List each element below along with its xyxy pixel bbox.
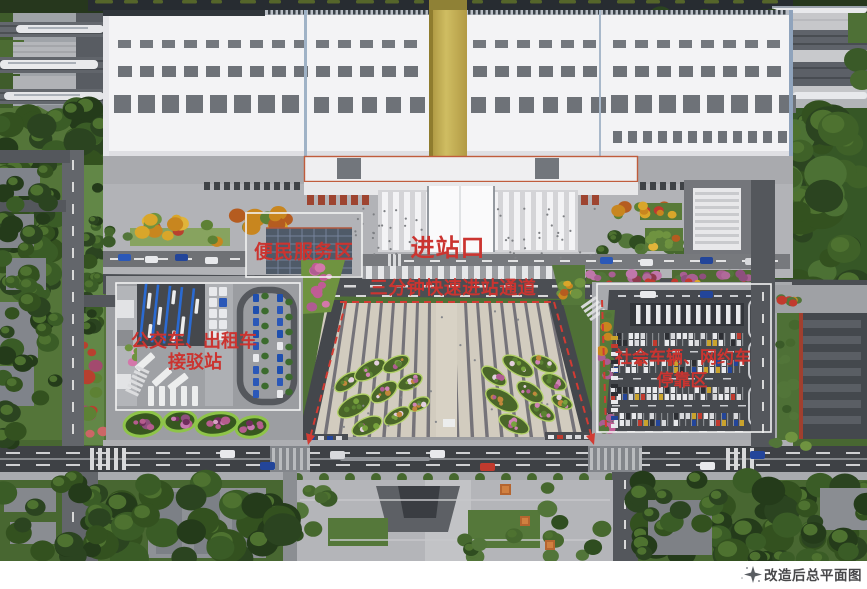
svg-text:接驳站: 接驳站 bbox=[168, 351, 222, 372]
svg-text:公交车、出租车: 公交车、出租车 bbox=[131, 330, 257, 351]
svg-text:停靠区: 停靠区 bbox=[657, 370, 708, 390]
svg-text:便民服务区: 便民服务区 bbox=[254, 240, 354, 263]
svg-text:社会车辆、网约车: 社会车辆、网约车 bbox=[614, 347, 751, 367]
svg-text:改造后总平面图: 改造后总平面图 bbox=[764, 567, 862, 583]
svg-text:进站口: 进站口 bbox=[411, 235, 486, 262]
svg-text:三分钟快速进站通道: 三分钟快速进站通道 bbox=[370, 277, 537, 298]
